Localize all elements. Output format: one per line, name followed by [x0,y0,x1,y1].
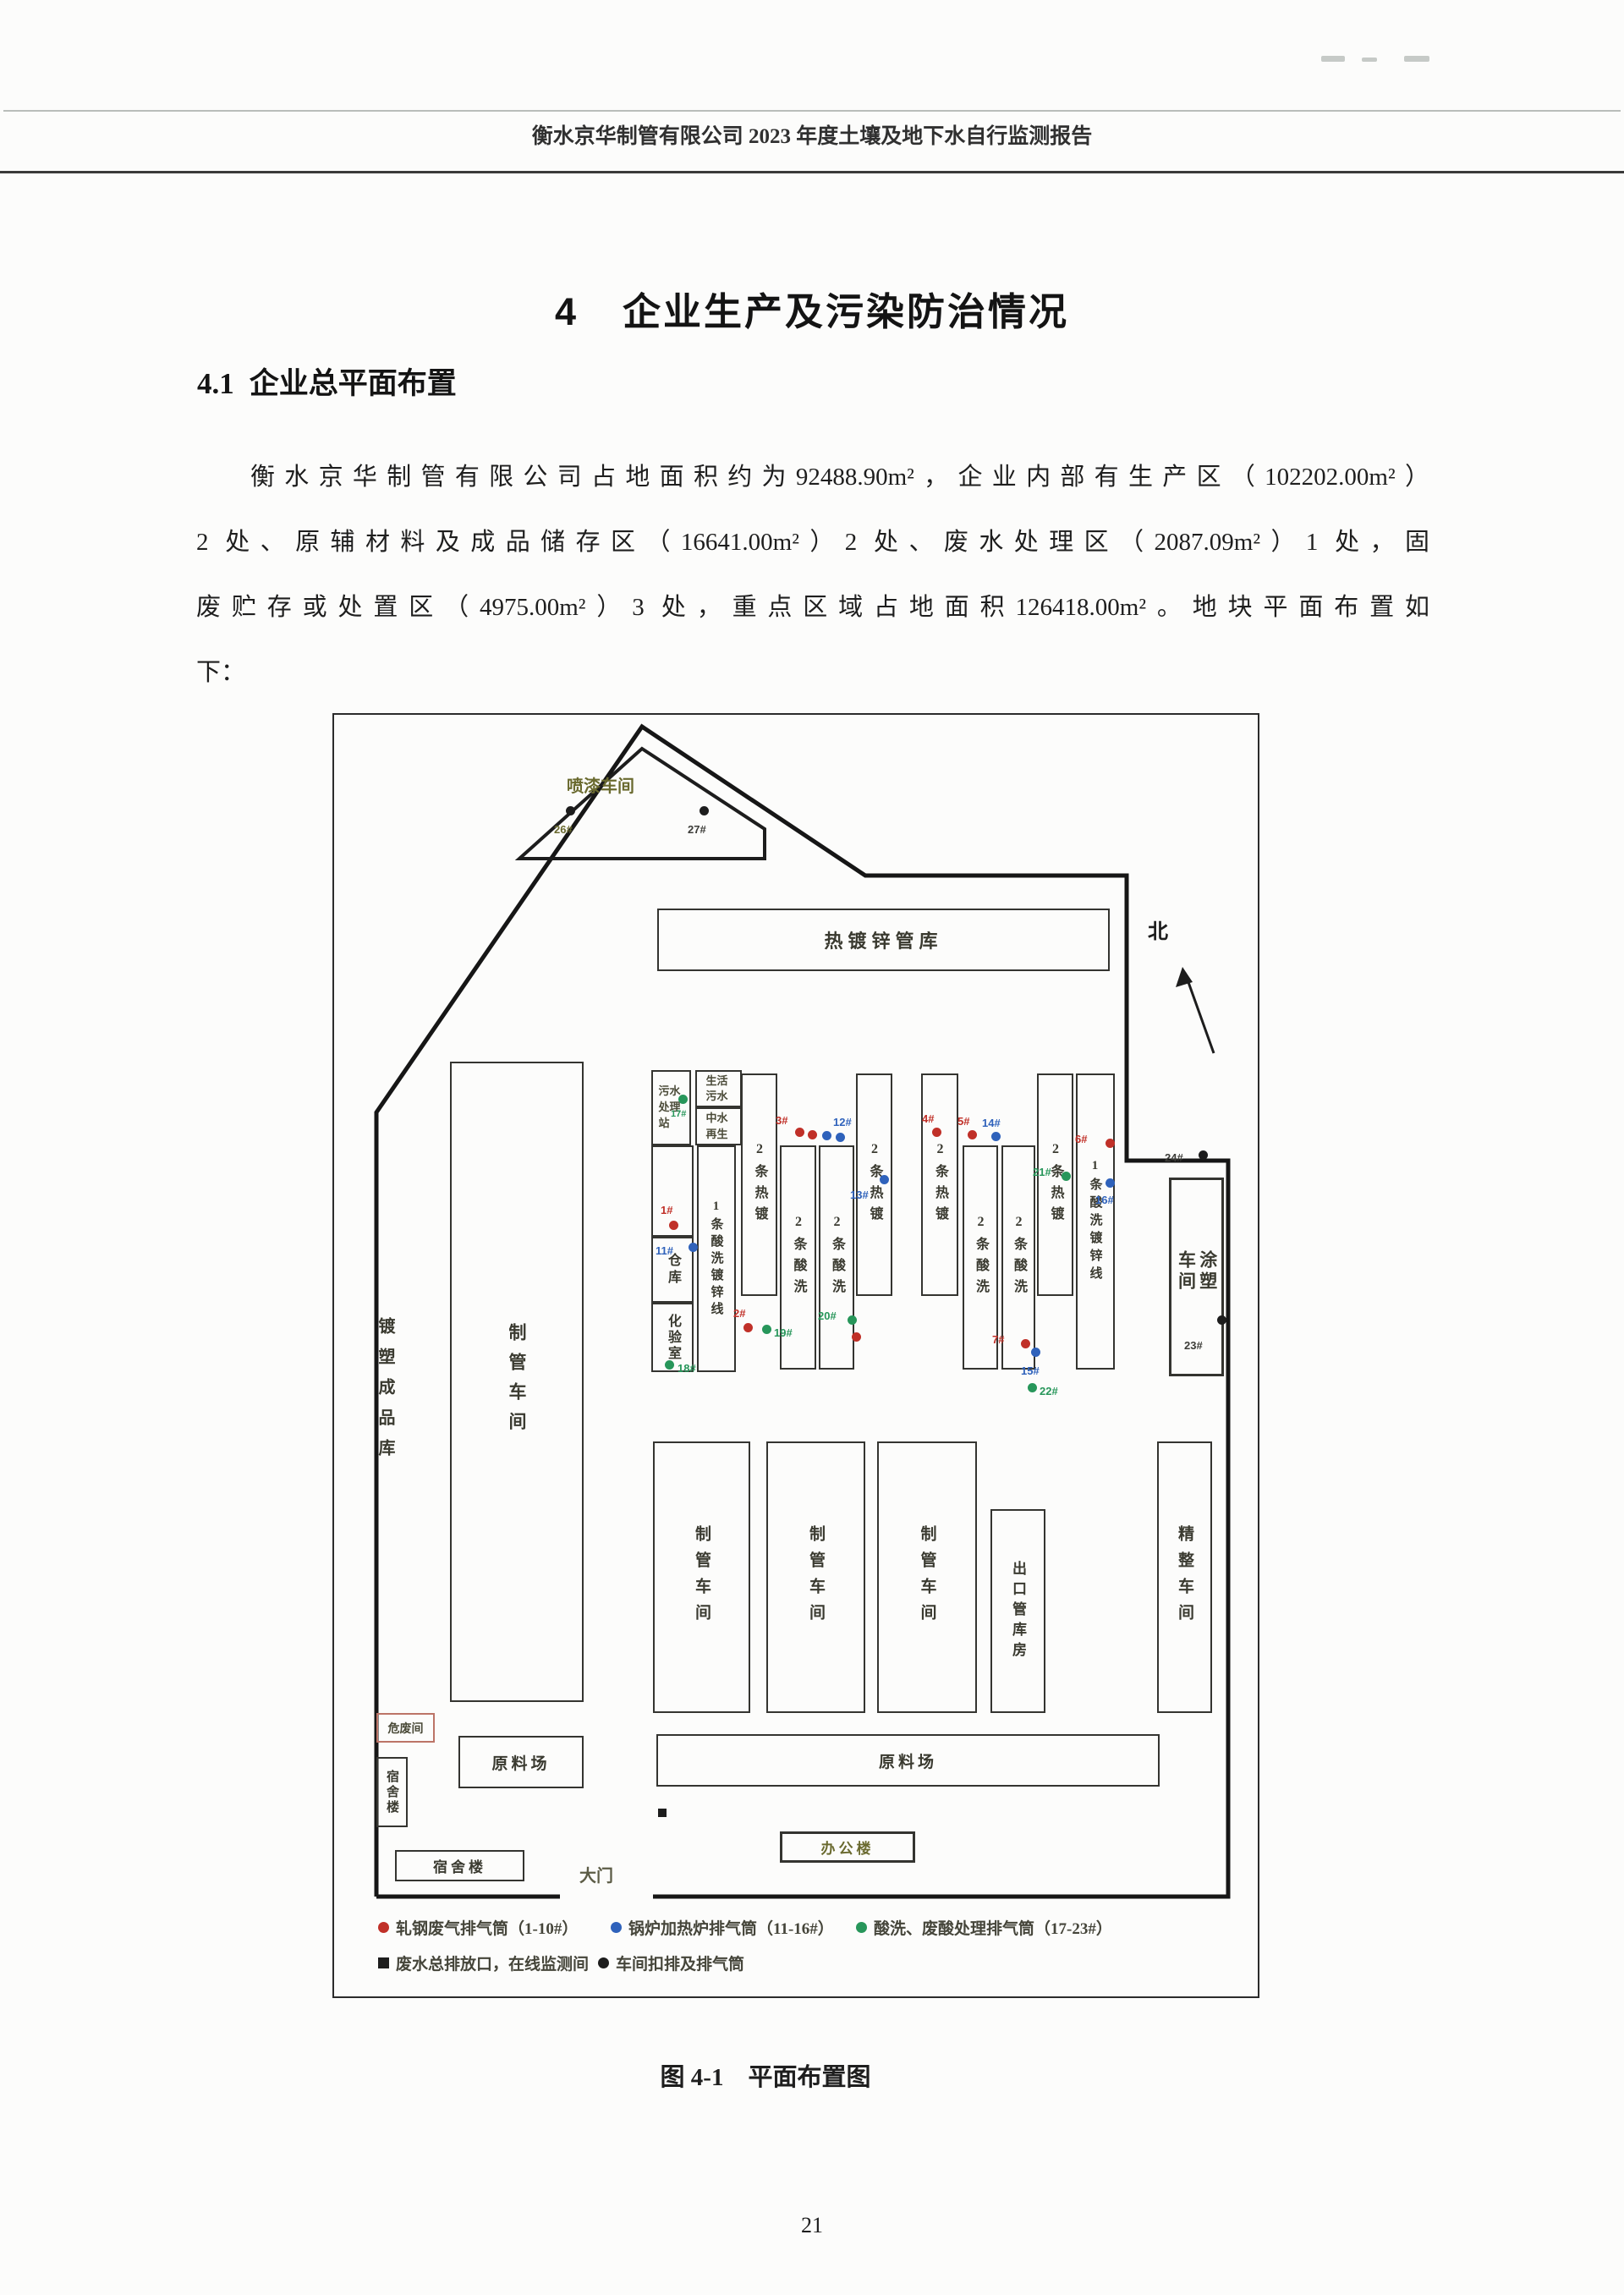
stack-label-6: 6# [1075,1133,1087,1145]
body-paragraph-line-2: 2 处、原辅材料及成品储存区（16641.00m²）2 处、废水处理区（2087… [196,522,1429,557]
stack-label-19: 19# [774,1326,793,1339]
building-label: 原料场 [879,1749,937,1772]
stack-label-14: 14# [982,1117,1001,1129]
building-raw-yard-small: 原料场 [458,1736,584,1788]
legend-text: 轧钢废气排气筒（1-10#） [396,1916,578,1939]
building-label: 仓库 [662,1253,683,1287]
legend-text: 酸洗、废酸处理排气筒（17-23#） [874,1916,1112,1939]
section-number: 4.1 [197,367,234,400]
legend-text: 废水总排放口，在线监测间 [396,1952,589,1974]
stack-label-22: 22# [1040,1385,1058,1397]
stack-dot-3 [795,1128,804,1137]
stack-label-16: 16# [1095,1194,1114,1206]
chapter-title: 4企业生产及污染防治情况 [0,281,1624,336]
green-dot-icon [856,1922,867,1933]
building-label: 宿舍楼 [433,1855,486,1876]
building-pipe-shop-main: 制管车间 [450,1062,584,1702]
legend-item-rolling-stacks: 轧钢废气排气筒（1-10#） [378,1916,578,1939]
line-strip-label: 2条热镀 [930,1142,950,1227]
building-label: 污水处理站 [659,1084,684,1132]
building-pipe-shop-a: 制管车间 [653,1441,750,1713]
stack-dot-13 [880,1175,889,1184]
stack-label-21: 21# [1033,1166,1051,1178]
stack-dot-20 [848,1315,857,1325]
stack-label-1: 1# [661,1204,672,1216]
page-number: 21 [0,2213,1624,2238]
stack-label-23: 23# [1184,1339,1203,1352]
legend-text: 锅炉加热炉排气筒（11-16#） [628,1916,834,1939]
red-dot-icon [378,1922,389,1933]
stack-dot-24 [1199,1150,1208,1160]
building-label: 制管车间 [690,1525,713,1630]
body-paragraph-line-1: 衡水京华制管有限公司占地面积约为92488.90m²，企业内部有生产区（1022… [196,457,1429,492]
stack-dot-1 [669,1221,678,1230]
building-water-reclaim: 中水再生 [695,1107,742,1145]
building-finishing-shop: 精整车间 [1157,1441,1212,1713]
building-label: 制管车间 [804,1525,827,1630]
building-label: 化验室 [662,1314,683,1362]
stack-label-27: 27# [688,823,706,836]
building-label: 办公楼 [821,1837,875,1858]
stack-label-5: 5# [957,1115,969,1128]
legend-item-workshop-stacks: 车间扣排及排气筒 [598,1952,744,1974]
building-pipe-shop-b: 制管车间 [766,1441,865,1713]
building-product-store-label: 镀塑成品库 [373,1317,398,1537]
building-label: 宿舍楼 [383,1770,401,1815]
page-header: 衡水京华制管有限公司 2023 年度土壤及地下水自行监测报告 [0,119,1624,150]
stack-label-2: 2# [733,1307,745,1320]
line-strip-2: 2条热镀 [741,1073,777,1296]
north-label: 北 [1148,914,1168,944]
header-rule-light [3,110,1621,112]
stack-dot-2 [743,1323,753,1332]
stack-dot-extra-red2 [852,1332,861,1342]
stack-dot-extra-red [808,1130,817,1139]
stack-dot-15 [1031,1348,1040,1357]
wastewater-outfall-square [658,1809,667,1817]
building-dorm-vertical: 宿舍楼 [376,1757,408,1827]
stack-dot-extra-blue [836,1133,845,1142]
stack-label-15: 15# [1021,1364,1040,1377]
stack-label-20: 20# [818,1309,837,1322]
stack-dot-4 [932,1128,941,1137]
report-page: { "page": { "header": "衡水京华制管有限公司 2023 年… [0,0,1624,2295]
line-strip-9: 2条热镀 [1037,1073,1073,1296]
stack-dot-22 [1028,1383,1037,1392]
stack-label-11: 11# [656,1244,673,1257]
line-strip-8: 2条酸洗 [1001,1145,1035,1370]
stack-label-17: 17# [671,1109,686,1119]
line-strip-label: 2条酸洗 [970,1215,990,1300]
stack-dot-18 [665,1360,674,1370]
line-strip-label: 1条酸洗镀锌线 [708,1200,726,1319]
section-title-text: 企业总平面布置 [250,367,457,400]
stack-dot-26 [566,806,575,815]
stack-dot-14 [991,1132,1001,1141]
stack-dot-19 [762,1325,771,1334]
building-export-pipe-store: 出口管库房 [990,1509,1045,1713]
legend-text: 车间扣排及排气筒 [616,1952,744,1974]
scan-artifact-dash [1404,56,1429,62]
building-galv-pipe-store: 热镀锌管库 [657,909,1110,971]
stack-dot-6 [1106,1139,1115,1148]
building-label: 热镀锌管库 [824,926,942,953]
north-arrow-shaft [1185,973,1214,1053]
line-strip-label: 2条热镀 [749,1142,770,1227]
black-dot-icon [598,1957,609,1968]
stack-dot-7 [1021,1339,1030,1348]
stack-dot-11 [689,1243,698,1252]
building-label: 生活污水 [706,1073,732,1104]
scan-artifact-dash [1362,58,1377,62]
line-strip-label: 1条酸洗镀锌线 [1087,1159,1105,1284]
stack-dot-21 [1062,1172,1071,1181]
building-label: 原料场 [491,1751,550,1774]
stack-label-24: 24# [1165,1151,1183,1164]
building-label: 制管车间 [916,1525,939,1630]
line-strip-5: 2条热镀 [856,1073,892,1296]
stack-dot-12 [822,1131,831,1140]
building-label: 中水再生 [706,1111,732,1141]
building-dorm-horizontal: 宿舍楼 [395,1850,524,1881]
building-label: 涂塑车间 [1175,1250,1217,1304]
building-label: 制管车间 [504,1323,529,1441]
gate-label: 大门 [579,1862,613,1886]
legend-item-pickling-stacks: 酸洗、废酸处理排气筒（17-23#） [856,1916,1112,1939]
building-domestic-sewage: 生活污水 [695,1070,742,1107]
blue-dot-icon [611,1922,622,1933]
site-plan-figure: 北 喷漆车间 26# 27# 热镀锌管库 镀塑成品库 制管车间 污水处理站 生活… [332,713,1259,1998]
line-strip-label: 2条热镀 [864,1142,885,1227]
building-label: 精整车间 [1173,1525,1196,1630]
stack-label-3: 3# [776,1114,787,1127]
stack-label-12: 12# [833,1116,852,1128]
line-strip-label: 2条酸洗 [788,1215,809,1300]
building-label: 出口管库房 [1007,1561,1029,1662]
section-heading: 4.1企业总平面布置 [197,360,457,403]
building-office: 办公楼 [780,1831,915,1863]
stack-dot-27 [700,806,709,815]
line-strip-4: 2条酸洗 [819,1145,854,1370]
line-strip-6: 2条热镀 [921,1073,958,1296]
stack-dot-23 [1217,1315,1226,1325]
stack-label-13: 13# [850,1189,869,1201]
black-square-icon [378,1957,389,1968]
line-strip-label: 2条酸洗 [826,1215,847,1300]
legend-item-outfall: 废水总排放口，在线监测间 [378,1952,589,1974]
legend-item-boiler-stacks: 锅炉加热炉排气筒（11-16#） [611,1916,834,1939]
building-label: 危废间 [388,1720,424,1737]
paint-shop-triangle [519,749,765,859]
body-paragraph-line-4: 下： [196,652,1429,688]
stack-label-26: 26# [554,823,573,836]
stack-dot-5 [968,1130,977,1139]
body-paragraph-line-3: 废贮存或处置区（4975.00m²）3 处，重点区域占地面积126418.00m… [196,587,1429,623]
building-raw-yard-big: 原料场 [656,1734,1160,1787]
line-strip-1: 1条酸洗镀锌线 [697,1145,736,1372]
stack-label-4: 4# [922,1112,934,1125]
header-rule-dark [0,171,1624,173]
stack-dot-16 [1106,1178,1115,1188]
line-strip-label: 2条热镀 [1045,1142,1066,1227]
building-hazwaste-room: 危废间 [376,1713,435,1743]
building-pipe-shop-c: 制管车间 [877,1441,977,1713]
stack-label-18: 18# [678,1362,696,1375]
chapter-number: 4 [555,290,579,333]
building-sewage-station: 污水处理站 [651,1070,691,1145]
line-strip-label: 2条酸洗 [1008,1215,1029,1300]
scan-artifact-dash [1321,56,1345,62]
figure-caption: 图 4-1 平面布置图 [0,2057,1577,2093]
chapter-title-text: 企业生产及污染防治情况 [623,290,1069,333]
line-strip-10: 1条酸洗镀锌线 [1076,1073,1115,1370]
stack-dot-17 [678,1095,688,1104]
stack-label-7: 7# [992,1333,1004,1346]
building-paint-shop-label: 喷漆车间 [537,772,664,797]
